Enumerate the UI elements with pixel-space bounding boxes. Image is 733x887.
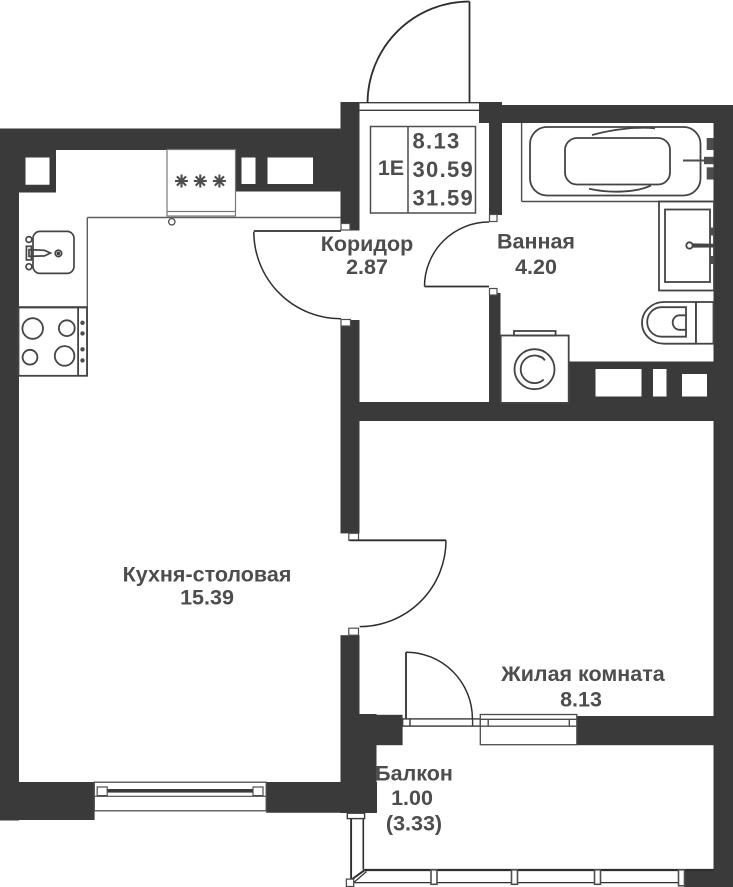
svg-text:Жилая комната: Жилая комната: [500, 662, 665, 686]
svg-text:(3.33): (3.33): [386, 811, 442, 835]
svg-text:Кухня-столовая: Кухня-столовая: [123, 562, 292, 586]
svg-text:15.39: 15.39: [180, 585, 234, 609]
svg-text:8.13: 8.13: [413, 129, 461, 154]
svg-text:Коридор: Коридор: [321, 232, 414, 256]
svg-text:Балкон: Балкон: [375, 761, 453, 785]
svg-text:31.59: 31.59: [413, 186, 475, 211]
svg-text:4.20: 4.20: [515, 255, 557, 279]
svg-text:30.59: 30.59: [413, 157, 475, 182]
svg-text:1.00: 1.00: [391, 786, 433, 810]
svg-text:8.13: 8.13: [560, 687, 602, 711]
svg-text:1Е: 1Е: [378, 156, 404, 180]
svg-text:Ванная: Ванная: [497, 229, 575, 253]
svg-text:2.87: 2.87: [346, 255, 388, 279]
